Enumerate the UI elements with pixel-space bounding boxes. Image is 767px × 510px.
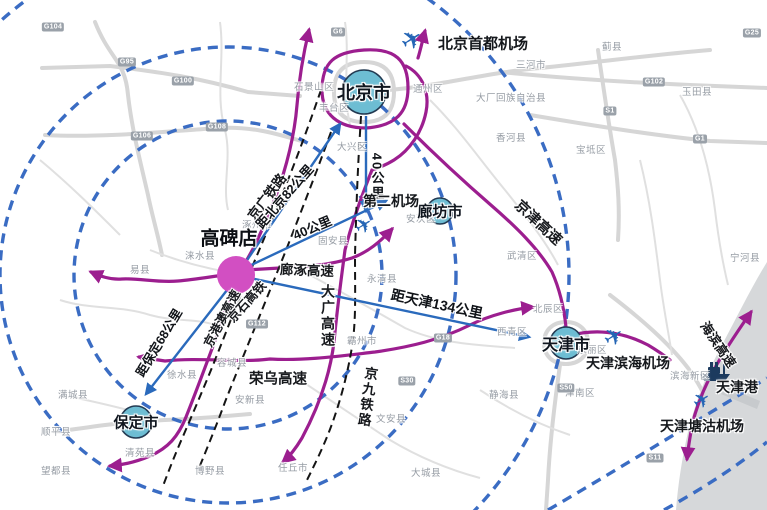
county-label: 三河市 bbox=[516, 57, 546, 71]
county-label: 大城县 bbox=[411, 465, 441, 479]
port-label: 天津港 bbox=[716, 377, 758, 397]
road-name-label: 大广高速 bbox=[318, 284, 338, 348]
city-label: 廊坊市 bbox=[417, 201, 462, 222]
airport-label: 天津塘沽机场 bbox=[660, 416, 744, 436]
road-number-badge: G100 bbox=[172, 77, 194, 86]
road-name-label: 荣乌高速 bbox=[249, 368, 307, 389]
radius-rings bbox=[0, 0, 767, 510]
county-label: 满城县 bbox=[58, 387, 88, 401]
county-label: 西青区 bbox=[497, 324, 527, 338]
road-number-badge: G25 bbox=[743, 29, 761, 38]
county-label: 永清县 bbox=[367, 271, 397, 285]
county-label: 武清区 bbox=[507, 248, 537, 262]
county-label: 香河县 bbox=[496, 130, 526, 144]
county-label: 清苑县 bbox=[125, 445, 155, 459]
county-label: 北辰区 bbox=[533, 301, 563, 315]
county-label: 望都县 bbox=[41, 463, 71, 477]
road-number-badge: G106 bbox=[131, 132, 153, 141]
county-label: 大厂回族自治县 bbox=[476, 90, 546, 104]
city-label: 北京市 bbox=[337, 79, 391, 105]
county-label: 博野县 bbox=[195, 463, 225, 477]
county-label: 安新县 bbox=[235, 392, 265, 406]
road-name-label: 廊涿高速 bbox=[280, 258, 335, 280]
county-label: 静海县 bbox=[489, 387, 519, 401]
road-number-badge: G1 bbox=[693, 135, 707, 144]
county-label: 文安县 bbox=[376, 411, 406, 425]
county-label: 滨海新区 bbox=[670, 368, 710, 382]
map-canvas: 涞水县易县涿州市固安县永清县安次区武清区三河市蓟县玉田县大厂回族自治县香河县通州… bbox=[0, 0, 767, 510]
road-number-badge: S50 bbox=[557, 384, 574, 393]
county-label: 宝坻区 bbox=[576, 142, 606, 156]
county-label: 易县 bbox=[130, 262, 150, 276]
road-number-badge: G95 bbox=[118, 58, 136, 67]
county-label: 通州区 bbox=[413, 81, 443, 95]
city-label: 保定市 bbox=[113, 412, 158, 433]
county-label: 蓟县 bbox=[602, 39, 622, 53]
road-number-badge: G102 bbox=[643, 78, 665, 87]
airport-label: 第二机场 bbox=[363, 191, 419, 211]
county-label: 玉田县 bbox=[682, 84, 712, 98]
airport-label: 天津滨海机场 bbox=[586, 353, 670, 373]
airport-label: 北京首都机场 bbox=[438, 33, 528, 54]
county-label: 固安县 bbox=[318, 233, 348, 247]
line-to-tianjin bbox=[250, 278, 529, 337]
road-number-badge: G104 bbox=[42, 23, 64, 32]
county-label: 顺平县 bbox=[41, 424, 71, 438]
city-label: 天津市 bbox=[542, 331, 590, 355]
origin-label: 高碑店 bbox=[200, 224, 257, 251]
road-number-badge: S30 bbox=[398, 377, 415, 386]
county-label: 石景山区 bbox=[294, 79, 334, 93]
county-label: 宁河县 bbox=[730, 250, 760, 264]
map-graphics bbox=[0, 0, 767, 510]
road-number-badge: G108 bbox=[206, 123, 228, 132]
road-number-badge: G6 bbox=[331, 28, 345, 37]
county-label: 霸州市 bbox=[347, 333, 377, 347]
county-label: 任丘市 bbox=[278, 460, 308, 474]
county-label: 徐水县 bbox=[167, 367, 197, 381]
county-label: 容城县 bbox=[217, 355, 247, 369]
road-number-badge: S1 bbox=[603, 107, 616, 116]
road-number-badge: G112 bbox=[246, 320, 268, 329]
county-label: 大兴区 bbox=[337, 139, 367, 153]
road-number-badge: G18 bbox=[434, 334, 452, 343]
road-number-badge: S11 bbox=[647, 454, 664, 463]
